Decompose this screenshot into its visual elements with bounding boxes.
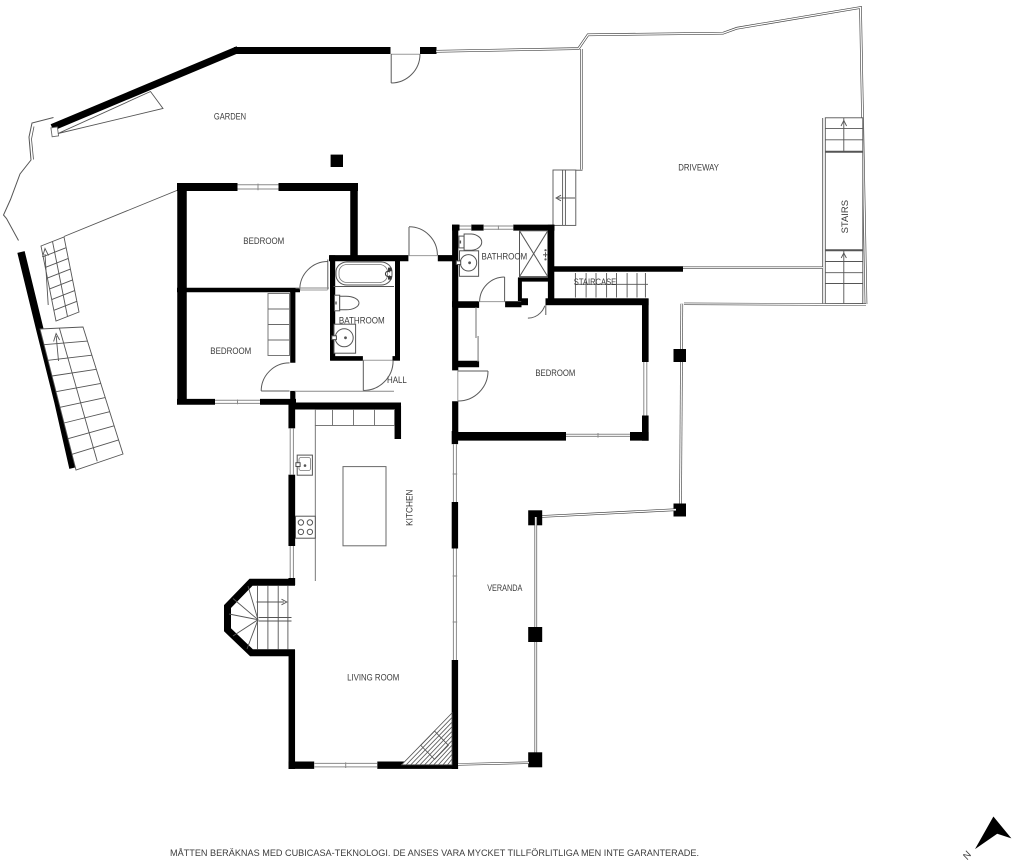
svg-text:BATHROOM: BATHROOM [339,314,385,325]
svg-text:BEDROOM: BEDROOM [243,235,284,246]
svg-text:GARDEN: GARDEN [214,111,246,122]
svg-text:LIVING ROOM: LIVING ROOM [347,672,399,683]
svg-text:HALL: HALL [387,374,407,385]
svg-text:VERANDA: VERANDA [487,582,523,593]
svg-text:BATHROOM: BATHROOM [482,251,528,262]
svg-text:STAIRCASE: STAIRCASE [574,276,616,287]
svg-text:DRIVEWAY: DRIVEWAY [678,162,719,173]
svg-text:STAIRS: STAIRS [839,200,850,233]
svg-text:BEDROOM: BEDROOM [535,367,575,378]
svg-text:KITCHEN: KITCHEN [404,490,415,526]
svg-text:MÅTTEN BERÄKNAS MED CUBICASA-T: MÅTTEN BERÄKNAS MED CUBICASA-TEKNOLOGI. … [170,848,699,858]
svg-text:BEDROOM: BEDROOM [210,345,251,356]
